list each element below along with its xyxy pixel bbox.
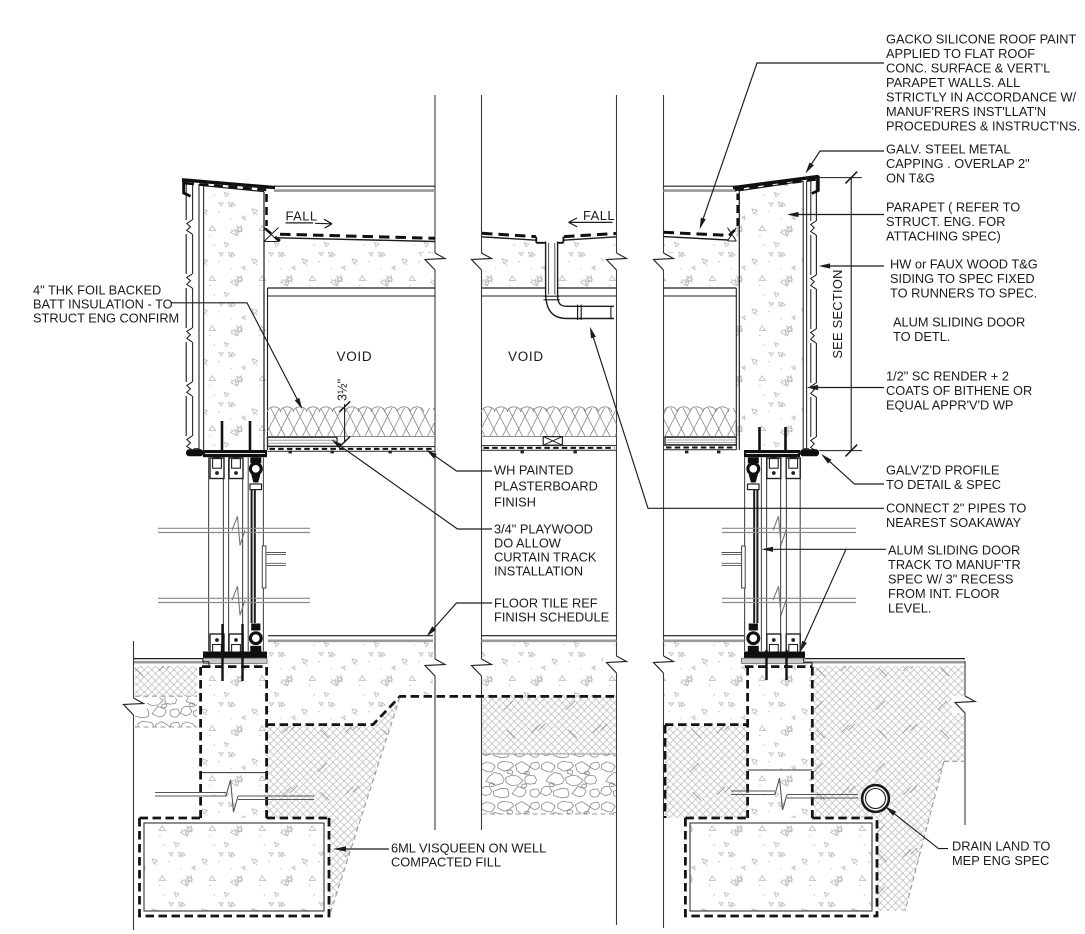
svg-text:COATS OF BITHENE OR: COATS OF BITHENE OR <box>886 383 1032 398</box>
svg-text:PARAPET ( REFER TO: PARAPET ( REFER TO <box>886 200 1020 215</box>
svg-text:1/2" SC RENDER + 2: 1/2" SC RENDER + 2 <box>886 369 1009 384</box>
svg-text:FINISH: FINISH <box>494 494 536 509</box>
svg-text:ALUM SLIDING DOOR: ALUM SLIDING DOOR <box>893 315 1025 330</box>
svg-text:WH PAINTED: WH PAINTED <box>494 463 573 478</box>
svg-text:TO RUNNERS TO SPEC.: TO RUNNERS TO SPEC. <box>890 286 1037 301</box>
svg-text:FALL: FALL <box>286 209 318 224</box>
svg-text:EQUAL APPR'V'D WP: EQUAL APPR'V'D WP <box>886 398 1013 413</box>
svg-text:PARAPET WALLS. ALL: PARAPET WALLS. ALL <box>886 75 1020 90</box>
svg-text:TRACK TO MANUF'TR: TRACK TO MANUF'TR <box>888 557 1021 572</box>
svg-text:GALV. STEEL METAL: GALV. STEEL METAL <box>886 142 1010 157</box>
svg-text:CONC. SURFACE & VERT'L: CONC. SURFACE & VERT'L <box>886 61 1050 76</box>
svg-text:APPLIED TO FLAT ROOF: APPLIED TO FLAT ROOF <box>886 46 1035 61</box>
svg-text:FINISH SCHEDULE: FINISH SCHEDULE <box>494 610 609 625</box>
svg-text:CAPPING . OVERLAP 2": CAPPING . OVERLAP 2" <box>886 156 1030 171</box>
svg-text:COMPACTED FILL: COMPACTED FILL <box>391 855 501 870</box>
svg-text:SPEC W/ 3" RECESS: SPEC W/ 3" RECESS <box>888 572 1013 587</box>
svg-text:MEP ENG SPEC: MEP ENG SPEC <box>952 853 1049 868</box>
svg-text:TO DETAIL & SPEC: TO DETAIL & SPEC <box>886 477 1001 492</box>
svg-text:CURTAIN TRACK: CURTAIN TRACK <box>494 550 597 565</box>
svg-text:DRAIN LAND TO: DRAIN LAND TO <box>952 839 1050 854</box>
svg-text:HW or FAUX WOOD T&G: HW or FAUX WOOD T&G <box>890 257 1038 272</box>
svg-text:3/4" PLAYWOOD: 3/4" PLAYWOOD <box>494 522 593 537</box>
svg-text:MANUF'RERS INST'LLAT'N: MANUF'RERS INST'LLAT'N <box>886 104 1046 119</box>
svg-text:INSTALLATION: INSTALLATION <box>494 564 583 579</box>
svg-text:DO ALLOW: DO ALLOW <box>494 536 562 551</box>
svg-text:GALV'Z'D PROFILE: GALV'Z'D PROFILE <box>886 463 999 478</box>
svg-text:STRICTLY IN ACCORDANCE W/: STRICTLY IN ACCORDANCE W/ <box>886 90 1077 105</box>
svg-text:VOID: VOID <box>337 349 373 364</box>
svg-text:BATT INSULATION - TO: BATT INSULATION - TO <box>33 297 173 312</box>
svg-text:TO DETL.: TO DETL. <box>893 329 950 344</box>
svg-text:LEVEL.: LEVEL. <box>888 601 931 616</box>
svg-text:SIDING TO SPEC FIXED: SIDING TO SPEC FIXED <box>890 271 1035 286</box>
svg-text:STRUCT. ENG. FOR: STRUCT. ENG. FOR <box>886 214 1005 229</box>
svg-text:PROCEDURES & INSTRUCT'NS.: PROCEDURES & INSTRUCT'NS. <box>886 119 1080 134</box>
svg-text:4" THK FOIL BACKED: 4" THK FOIL BACKED <box>33 283 161 298</box>
svg-text:ON T&G: ON T&G <box>886 171 935 186</box>
svg-text:FLOOR TILE REF: FLOOR TILE REF <box>494 596 598 611</box>
svg-text:3½": 3½" <box>336 379 350 401</box>
svg-text:NEAREST SOAKAWAY: NEAREST SOAKAWAY <box>886 515 1022 530</box>
svg-text:STRUCT ENG CONFIRM: STRUCT ENG CONFIRM <box>33 311 179 326</box>
svg-text:GACKO SILICONE ROOF PAINT: GACKO SILICONE ROOF PAINT <box>886 32 1077 47</box>
svg-text:SEE SECTION: SEE SECTION <box>830 269 845 358</box>
svg-text:ALUM SLIDING DOOR: ALUM SLIDING DOOR <box>888 543 1020 558</box>
svg-text:CONNECT 2" PIPES TO: CONNECT 2" PIPES TO <box>886 501 1026 516</box>
svg-text:PLASTERBOARD: PLASTERBOARD <box>494 479 598 494</box>
svg-text:FROM INT. FLOOR: FROM INT. FLOOR <box>888 586 1000 601</box>
svg-text:6ML VISQUEEN ON WELL: 6ML VISQUEEN ON WELL <box>391 841 546 856</box>
svg-text:VOID: VOID <box>508 349 544 364</box>
svg-text:ATTACHING SPEC): ATTACHING SPEC) <box>886 229 1001 244</box>
svg-text:FALL: FALL <box>583 208 615 223</box>
